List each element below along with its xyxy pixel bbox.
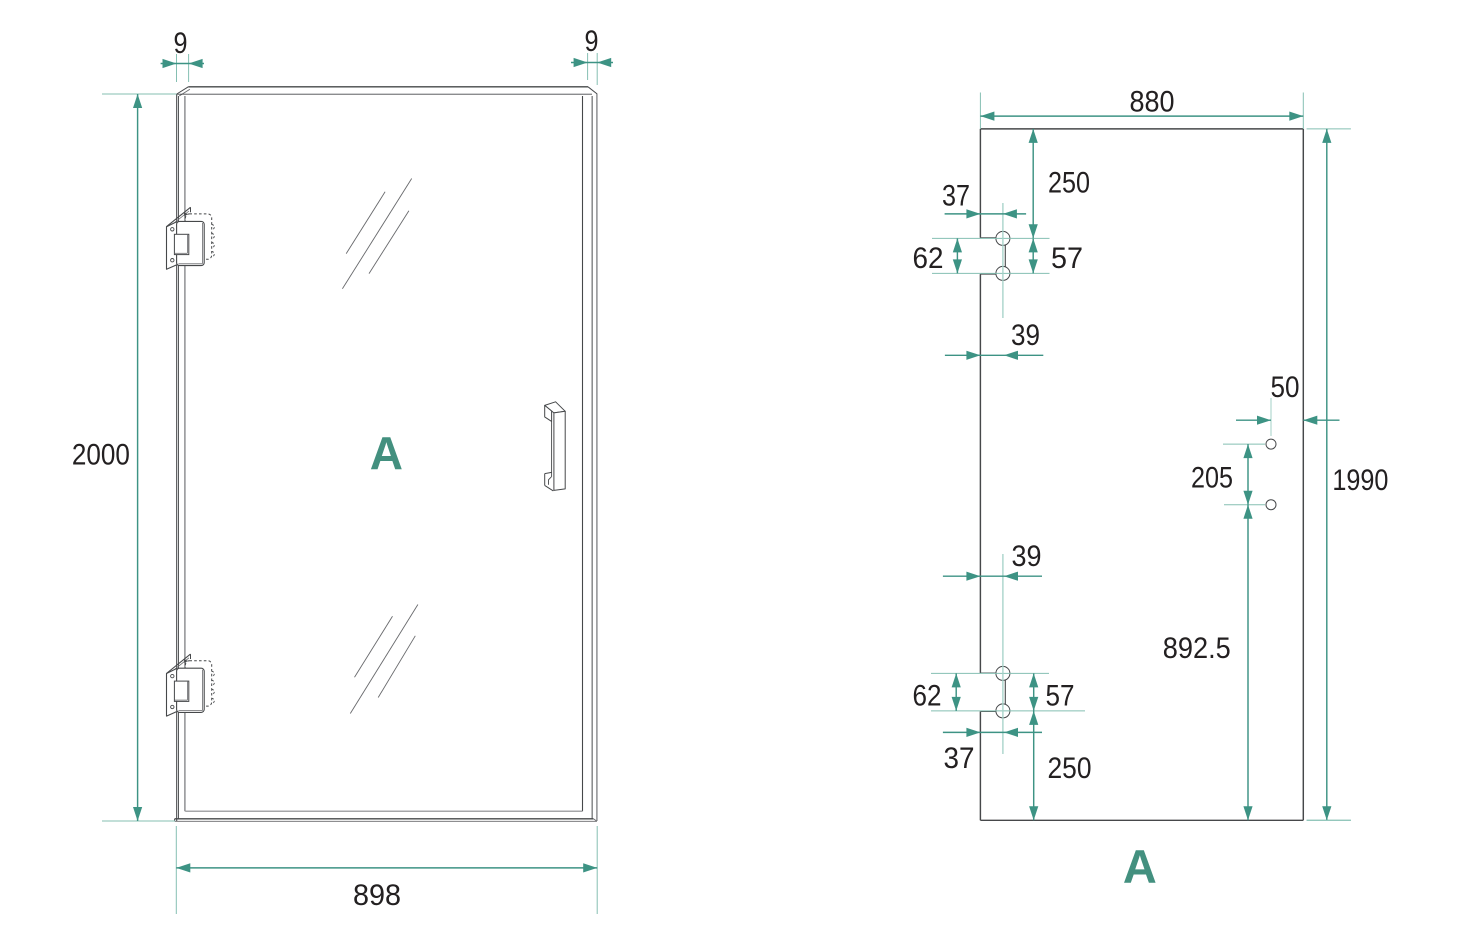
svg-text:62: 62: [913, 242, 944, 275]
svg-text:9: 9: [585, 25, 599, 58]
svg-text:37: 37: [942, 179, 970, 212]
svg-text:57: 57: [1046, 680, 1075, 713]
svg-text:37: 37: [944, 742, 975, 775]
svg-text:A: A: [1123, 840, 1157, 893]
svg-text:898: 898: [353, 879, 401, 912]
svg-text:250: 250: [1048, 752, 1092, 785]
svg-text:62: 62: [913, 680, 942, 713]
svg-text:39: 39: [1011, 319, 1040, 352]
svg-text:250: 250: [1048, 166, 1090, 199]
svg-text:892.5: 892.5: [1163, 632, 1231, 665]
svg-text:50: 50: [1271, 371, 1300, 404]
svg-text:39: 39: [1012, 540, 1042, 573]
svg-text:2000: 2000: [72, 439, 130, 472]
svg-text:1990: 1990: [1332, 464, 1388, 497]
svg-text:880: 880: [1130, 86, 1175, 119]
svg-text:57: 57: [1051, 242, 1083, 275]
svg-text:9: 9: [174, 27, 188, 60]
svg-text:A: A: [370, 427, 403, 479]
svg-text:205: 205: [1191, 461, 1233, 494]
